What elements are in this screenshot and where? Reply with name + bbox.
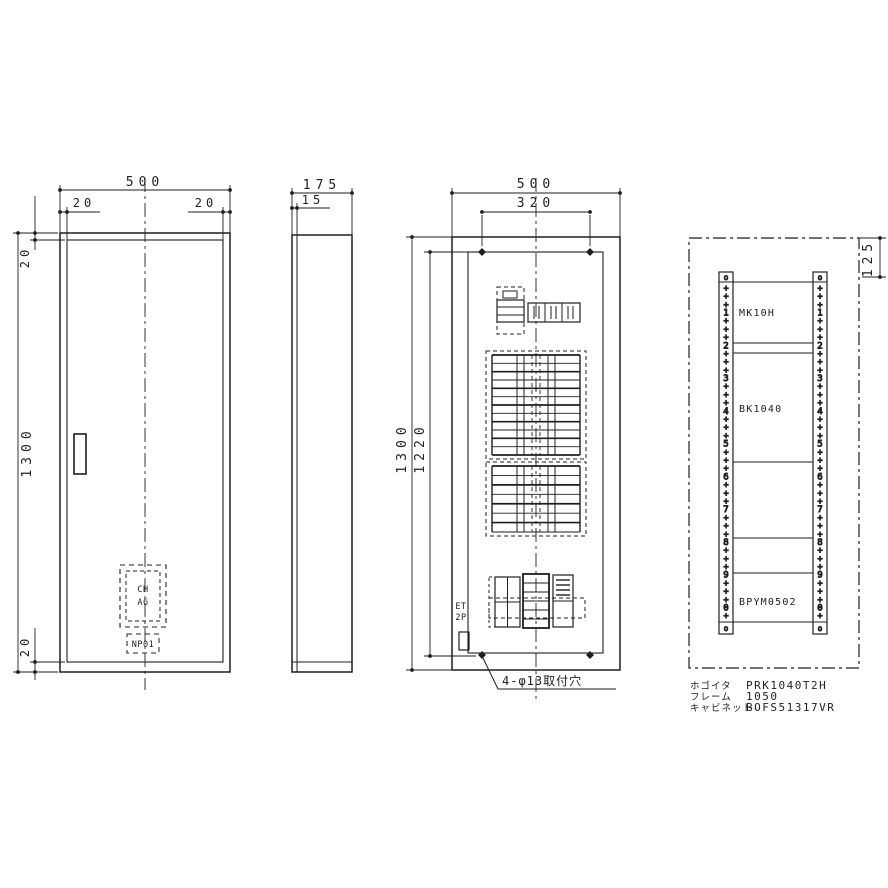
dim-dot: [428, 250, 432, 254]
door-handle: [74, 434, 86, 474]
door-cutout-label-line1: CH: [137, 585, 148, 595]
door-cutout-outer: [120, 565, 166, 627]
dim-internal-width: 500: [517, 177, 555, 192]
dim-dot: [878, 236, 882, 240]
schematic-view-text: 125 MK10H BK1040 BPYM0502 ホゴイタ PRK1040T2…: [690, 239, 876, 714]
dim-dot: [33, 660, 37, 664]
door-cutout-label-line2: A6: [137, 598, 148, 608]
dim-dot: [58, 188, 62, 192]
note-label-frame: フレーム: [690, 692, 732, 703]
drawing-canvas: 500 20 20 20 1300 20 CH A6 NP01 175 15: [0, 0, 888, 888]
dim-dot: [228, 188, 232, 192]
dim-side-door: 15: [302, 193, 324, 207]
dim-dot: [428, 654, 432, 658]
dim-dot: [228, 210, 232, 214]
dim-internal-height: 1300: [395, 422, 410, 473]
elb-label-line2: 2P: [455, 613, 466, 623]
note-value-cabinet: BOFS51317VR: [746, 701, 835, 714]
front-dim-lines: [13, 185, 230, 680]
rail-terminal: o: [724, 273, 729, 282]
dim-dot: [450, 191, 454, 195]
dim-front-margin-left: 20: [73, 196, 95, 210]
dim-dot: [65, 210, 69, 214]
dim-dot: [16, 231, 20, 235]
dim-internal-hole-height: 1220: [413, 422, 428, 473]
dim-front-width: 500: [126, 175, 164, 190]
section-lines: [719, 282, 827, 622]
dim-front-margin-top: 20: [18, 246, 32, 268]
dim-dot: [410, 668, 414, 672]
rail-plus-mark: +: [817, 612, 822, 622]
side-view-text: 175 15: [302, 178, 341, 207]
nameplate-label: NP01: [132, 640, 154, 650]
dim-front-margin-bottom: 20: [18, 635, 32, 657]
dim-internal-pitch: 320: [517, 196, 555, 211]
section-label-2: BK1040: [739, 404, 782, 415]
main-breaker-body: [497, 300, 524, 322]
dim-dot: [33, 231, 37, 235]
dim-dot: [33, 238, 37, 242]
dim-dot: [878, 275, 882, 279]
door-cutout-inner: [126, 571, 160, 621]
bottom-apparatus: [489, 574, 573, 628]
dim-dot: [290, 191, 294, 195]
side-view: [292, 188, 352, 672]
dim-front-height: 1300: [20, 426, 35, 477]
main-breaker-handle: [503, 291, 517, 298]
dim-dot: [290, 206, 294, 210]
dim-dot: [410, 235, 414, 239]
elb-label-line1: ET: [455, 602, 466, 612]
rail-terminal: o: [724, 624, 729, 633]
dim-dot: [16, 670, 20, 674]
panel-drawing: 500 20 20 20 1300 20 CH A6 NP01 175 15: [0, 0, 888, 888]
dim-dot: [33, 670, 37, 674]
note-label-cabinet: キャビネット: [690, 703, 753, 714]
rail-terminal: o: [818, 273, 823, 282]
side-outline: [292, 235, 352, 672]
dim-side-depth: 175: [303, 178, 341, 193]
dim-dot: [58, 210, 62, 214]
mounting-holes-note: 4-φ13取付穴: [502, 673, 582, 688]
section-label-5: BPYM0502: [739, 597, 797, 608]
dim-dot: [295, 206, 299, 210]
dim-dot: [221, 210, 225, 214]
dim-schematic-top: 125: [861, 239, 876, 277]
rail-plus-mark: +: [723, 612, 728, 622]
mounting-plate: [468, 252, 603, 653]
dim-dot: [350, 191, 354, 195]
dim-front-margin-right: 20: [195, 196, 217, 210]
rail-terminal: o: [818, 624, 823, 633]
section-label-1: MK10H: [739, 308, 775, 319]
front-view: [13, 178, 230, 690]
internal-view: [406, 178, 620, 700]
main-breaker-dashed: [497, 287, 524, 334]
front-view-text: 500 20 20 20 1300 20 CH A6 NP01: [18, 175, 217, 657]
note-label-hogoita: ホゴイタ: [690, 680, 732, 692]
dim-dot: [588, 210, 592, 214]
dim-dot: [618, 191, 622, 195]
dim-dot: [480, 210, 484, 214]
rail-marks: oo+++1+++2+++3+++4+++5+++6+++7+++8+++9++…: [723, 273, 822, 633]
